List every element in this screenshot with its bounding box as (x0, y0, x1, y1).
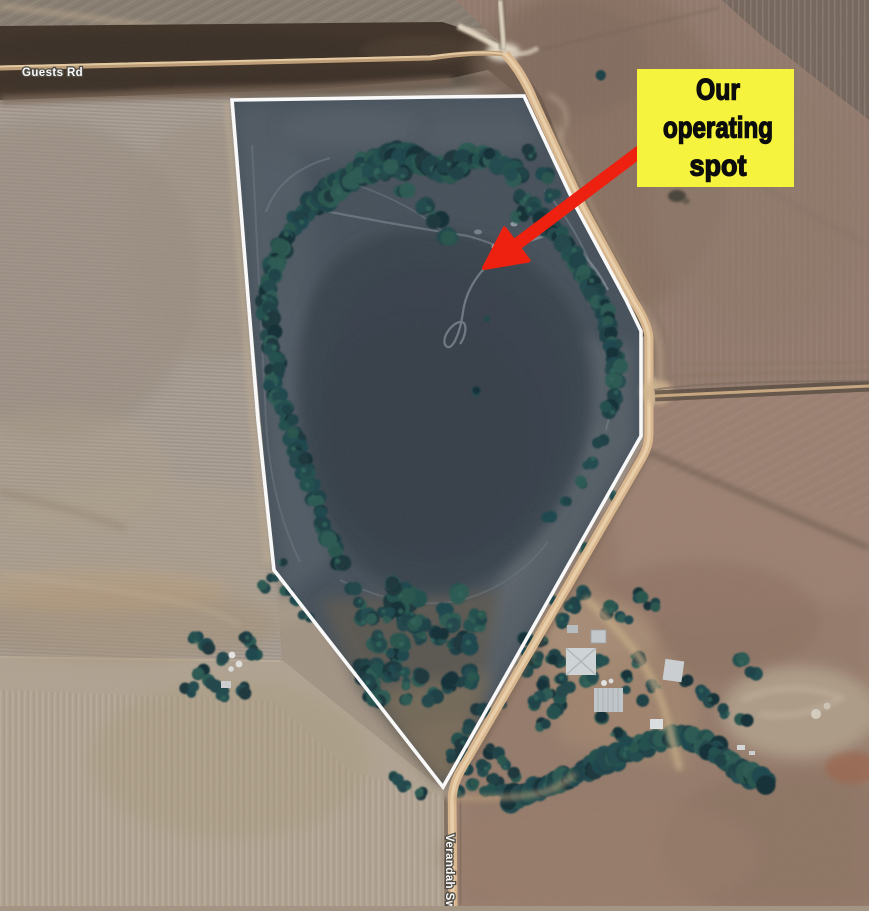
svg-text:operating: operating (663, 112, 773, 145)
svg-text:spot: spot (690, 150, 747, 183)
svg-text:Our: Our (696, 74, 740, 107)
